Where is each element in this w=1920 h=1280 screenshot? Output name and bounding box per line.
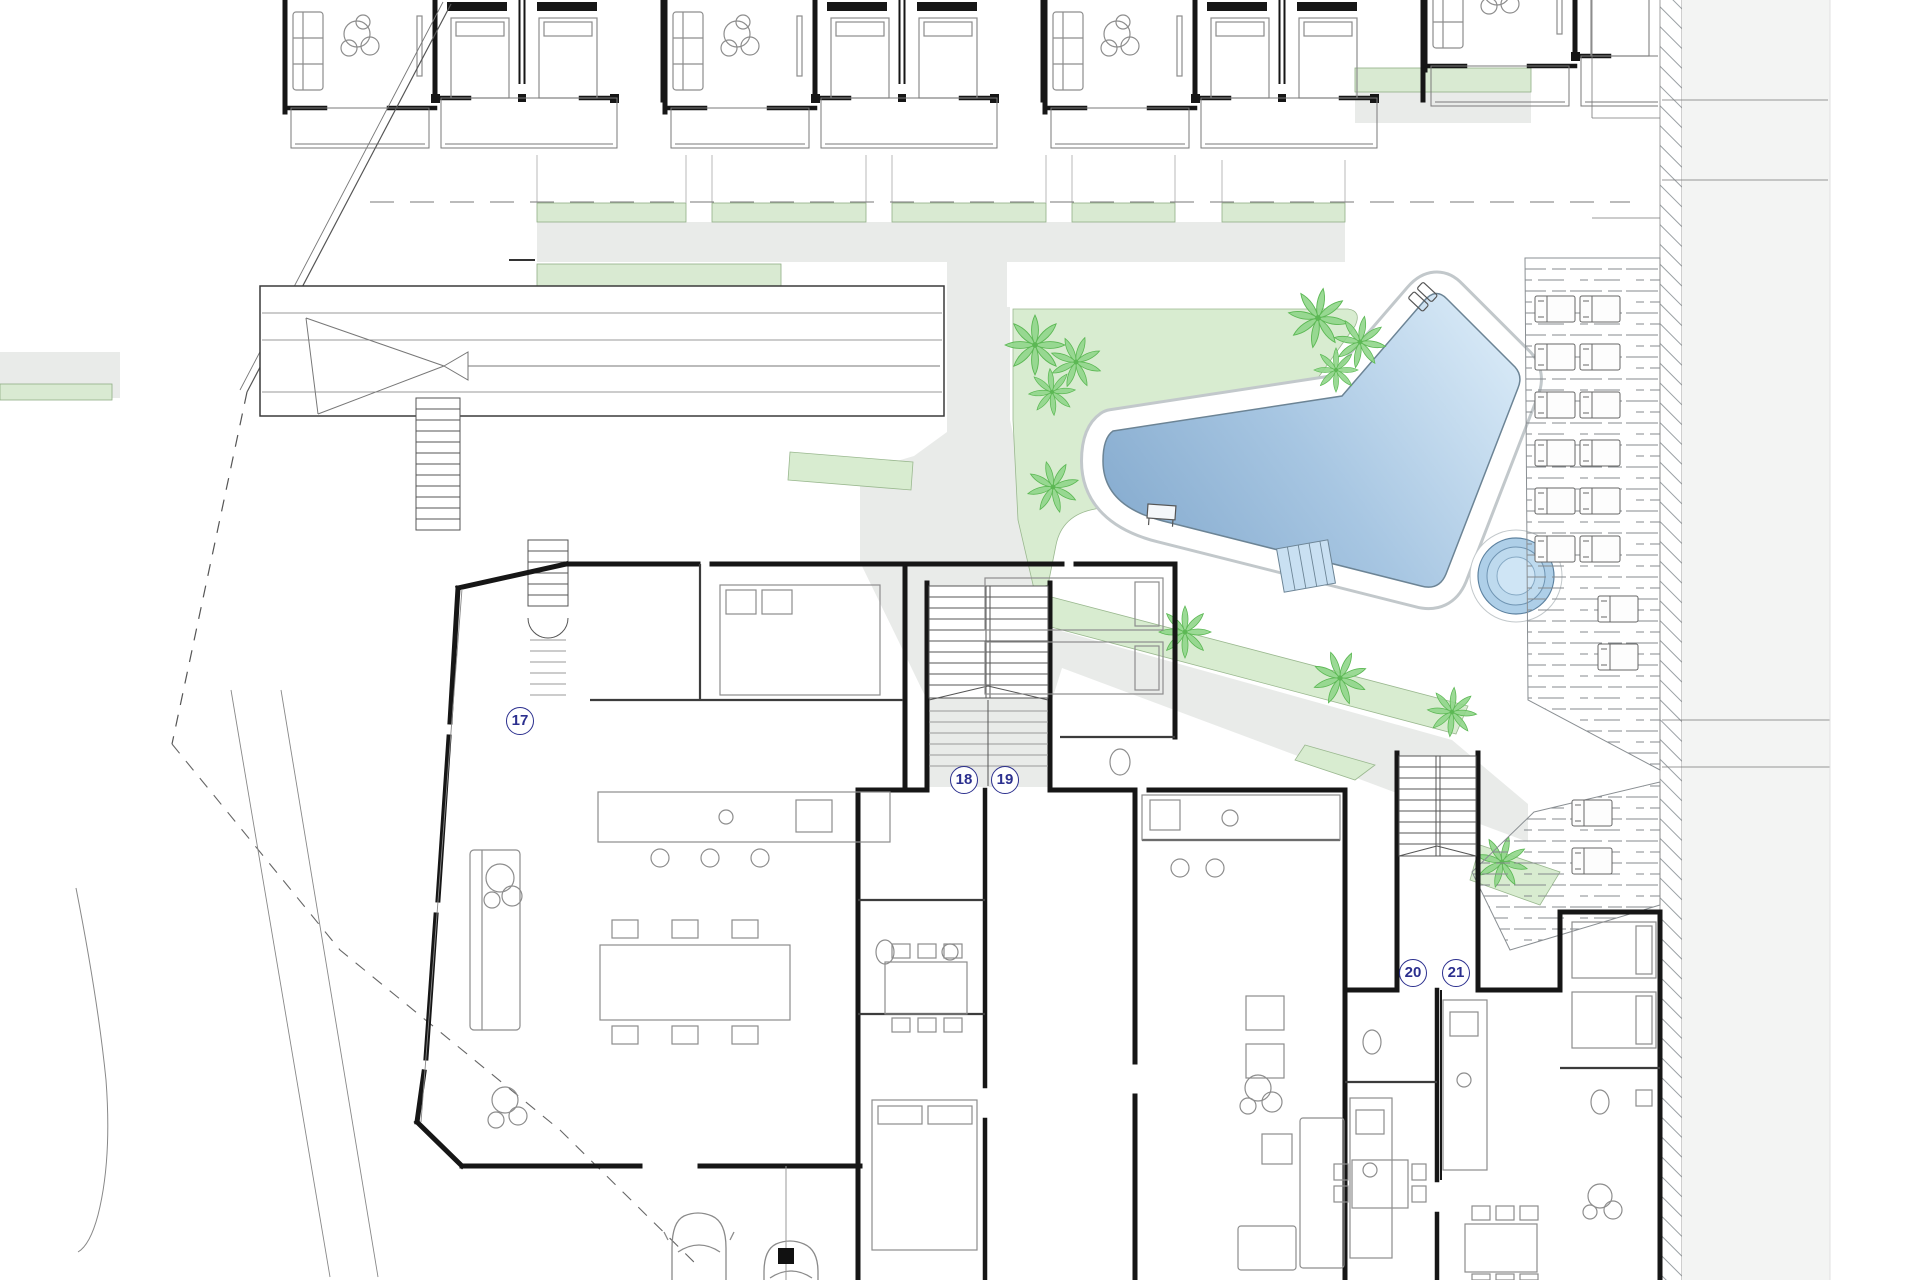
unit-21-label: 21 bbox=[1442, 959, 1470, 987]
staircase-units-20-21 bbox=[1399, 756, 1476, 856]
unit-19-label: 19 bbox=[991, 766, 1019, 794]
site-plan-drawing bbox=[0, 0, 1920, 1280]
unit-17-label: 17 bbox=[506, 707, 534, 735]
pool-stairs bbox=[1277, 540, 1336, 592]
boundary-hatch-strip bbox=[1660, 0, 1682, 1280]
unit-20-label: 20 bbox=[1399, 959, 1427, 987]
parking-garage-ramp bbox=[260, 286, 944, 416]
floor-plan-canvas: 17 18 19 20 21 bbox=[0, 0, 1920, 1280]
staircase-a bbox=[416, 398, 460, 530]
wall-pier bbox=[778, 1248, 794, 1264]
unit-18-label: 18 bbox=[950, 766, 978, 794]
